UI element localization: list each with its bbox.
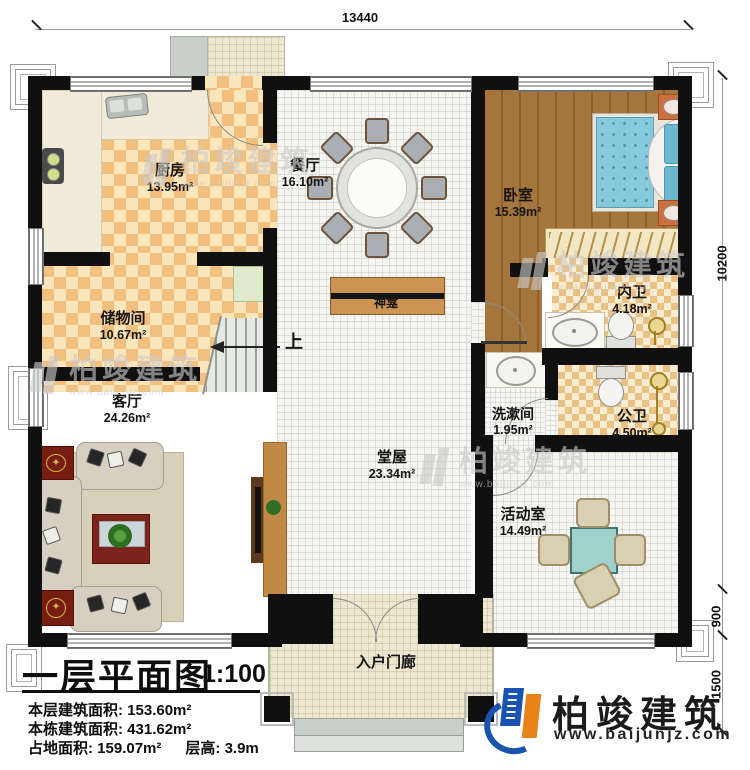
window-living-south xyxy=(67,633,232,649)
publicbath-shower-head xyxy=(650,372,668,390)
porch-column-left xyxy=(264,696,290,722)
plan-scale: 1:100 xyxy=(202,660,266,689)
innerbath-shower-arm xyxy=(654,331,656,345)
wall-washroom-south-stub xyxy=(475,435,493,452)
stat-building-area: 本栋建筑面积: 431.62m² xyxy=(28,718,191,739)
kitchen-stove xyxy=(42,148,64,184)
activity-label: 活动室14.49m² xyxy=(500,507,547,538)
opening-back-door xyxy=(205,76,262,90)
tv-screen xyxy=(255,487,261,553)
side-table: ✦ xyxy=(38,446,74,480)
wall-innerbath-publicbath xyxy=(542,348,692,365)
wall-hall-activity xyxy=(475,452,493,598)
dining-label: 餐厅16.10m² xyxy=(282,158,329,189)
back-porch-floor xyxy=(207,36,285,78)
washroom-label: 洗漱间1.95m² xyxy=(492,407,534,437)
dining-chair xyxy=(421,176,447,200)
porch-post-left xyxy=(268,594,333,644)
activity-chair xyxy=(576,498,610,528)
innerbath-label: 内卫4.18m² xyxy=(612,285,652,316)
opening-innerbath-door xyxy=(548,258,588,275)
bed-mattress xyxy=(596,117,654,208)
window-bedroom-north xyxy=(518,76,654,92)
window-activity-south xyxy=(527,633,655,649)
opening-bedroom-door xyxy=(471,302,485,343)
stairs-up-label: 上 xyxy=(285,332,303,352)
publicbath-label: 公卫4.50m² xyxy=(612,409,652,440)
floor-plan-page: 神龛 ✦ ✦ xyxy=(0,0,750,770)
dimension-line-top xyxy=(35,29,690,30)
window-storage-west xyxy=(28,228,44,285)
stat-footprint-height: 占地面积: 159.07m²层高: 3.9m xyxy=(28,737,259,758)
coffee-table-plant xyxy=(108,524,132,548)
wall-kitchen-storage-right xyxy=(197,252,277,266)
wall-kitchen-dining-upper xyxy=(263,90,277,143)
window-living-west xyxy=(28,368,44,427)
window-innerbath-east xyxy=(678,295,694,347)
washroom-sink xyxy=(496,356,536,386)
bedroom-label: 卧室15.39m² xyxy=(495,188,542,219)
shrine-label: 神龛 xyxy=(374,297,398,310)
wall-dining-bedroom xyxy=(471,90,485,302)
activity-chair xyxy=(538,534,570,566)
entry-step-2 xyxy=(294,735,464,752)
sofa-cushion xyxy=(45,497,62,514)
sofa-cushion xyxy=(111,597,129,615)
hall-label: 堂屋23.34m² xyxy=(369,450,416,481)
window-dining-north xyxy=(310,76,472,92)
tv-wall-plant xyxy=(266,500,281,515)
wall-storage-living xyxy=(28,367,200,381)
activity-chair xyxy=(614,534,646,566)
kitchen-label: 厨房13.95m² xyxy=(147,163,194,194)
publicbath-shower-arm xyxy=(656,386,658,424)
tv-wall-panel xyxy=(263,442,287,597)
wardrobe xyxy=(545,228,680,262)
porch-label: 入户门廊 xyxy=(356,655,416,672)
kitchen-sink xyxy=(105,93,149,119)
dining-chair xyxy=(365,232,389,258)
innerbath-shower-head xyxy=(648,317,666,335)
dimension-right-total: 10200 xyxy=(715,234,730,294)
title-underline xyxy=(22,690,260,693)
storage-label: 储物间10.67m² xyxy=(100,311,147,342)
dining-chair xyxy=(365,118,389,144)
stat-floor-area: 本层建筑面积: 153.60m² xyxy=(28,699,191,720)
window-publicbath-east xyxy=(678,372,694,430)
dimension-top-value: 13440 xyxy=(327,10,393,25)
innerbath-sink xyxy=(552,318,598,347)
dimension-right-offset: 900 xyxy=(709,587,724,647)
publicbath-drain xyxy=(652,422,666,436)
dining-table xyxy=(336,147,418,229)
sofa-cushion xyxy=(107,451,125,469)
side-table: ✦ xyxy=(38,590,74,626)
window-kitchen-north xyxy=(70,76,192,92)
storage-cabinet xyxy=(233,266,265,302)
brand-site: www.baijunjz.com xyxy=(554,726,732,744)
stairs-arrow-head xyxy=(210,341,224,353)
wall-west xyxy=(28,76,42,647)
living-label: 客厅24.26m² xyxy=(104,394,151,425)
brand-logo-building-blue xyxy=(500,688,524,726)
porch-post-right xyxy=(418,594,483,644)
bedroom-door-leaf xyxy=(481,341,527,344)
wall-washroom-publicbath xyxy=(545,352,558,400)
back-porch-landing xyxy=(170,36,209,78)
publicbath-toilet-bowl xyxy=(598,378,624,407)
